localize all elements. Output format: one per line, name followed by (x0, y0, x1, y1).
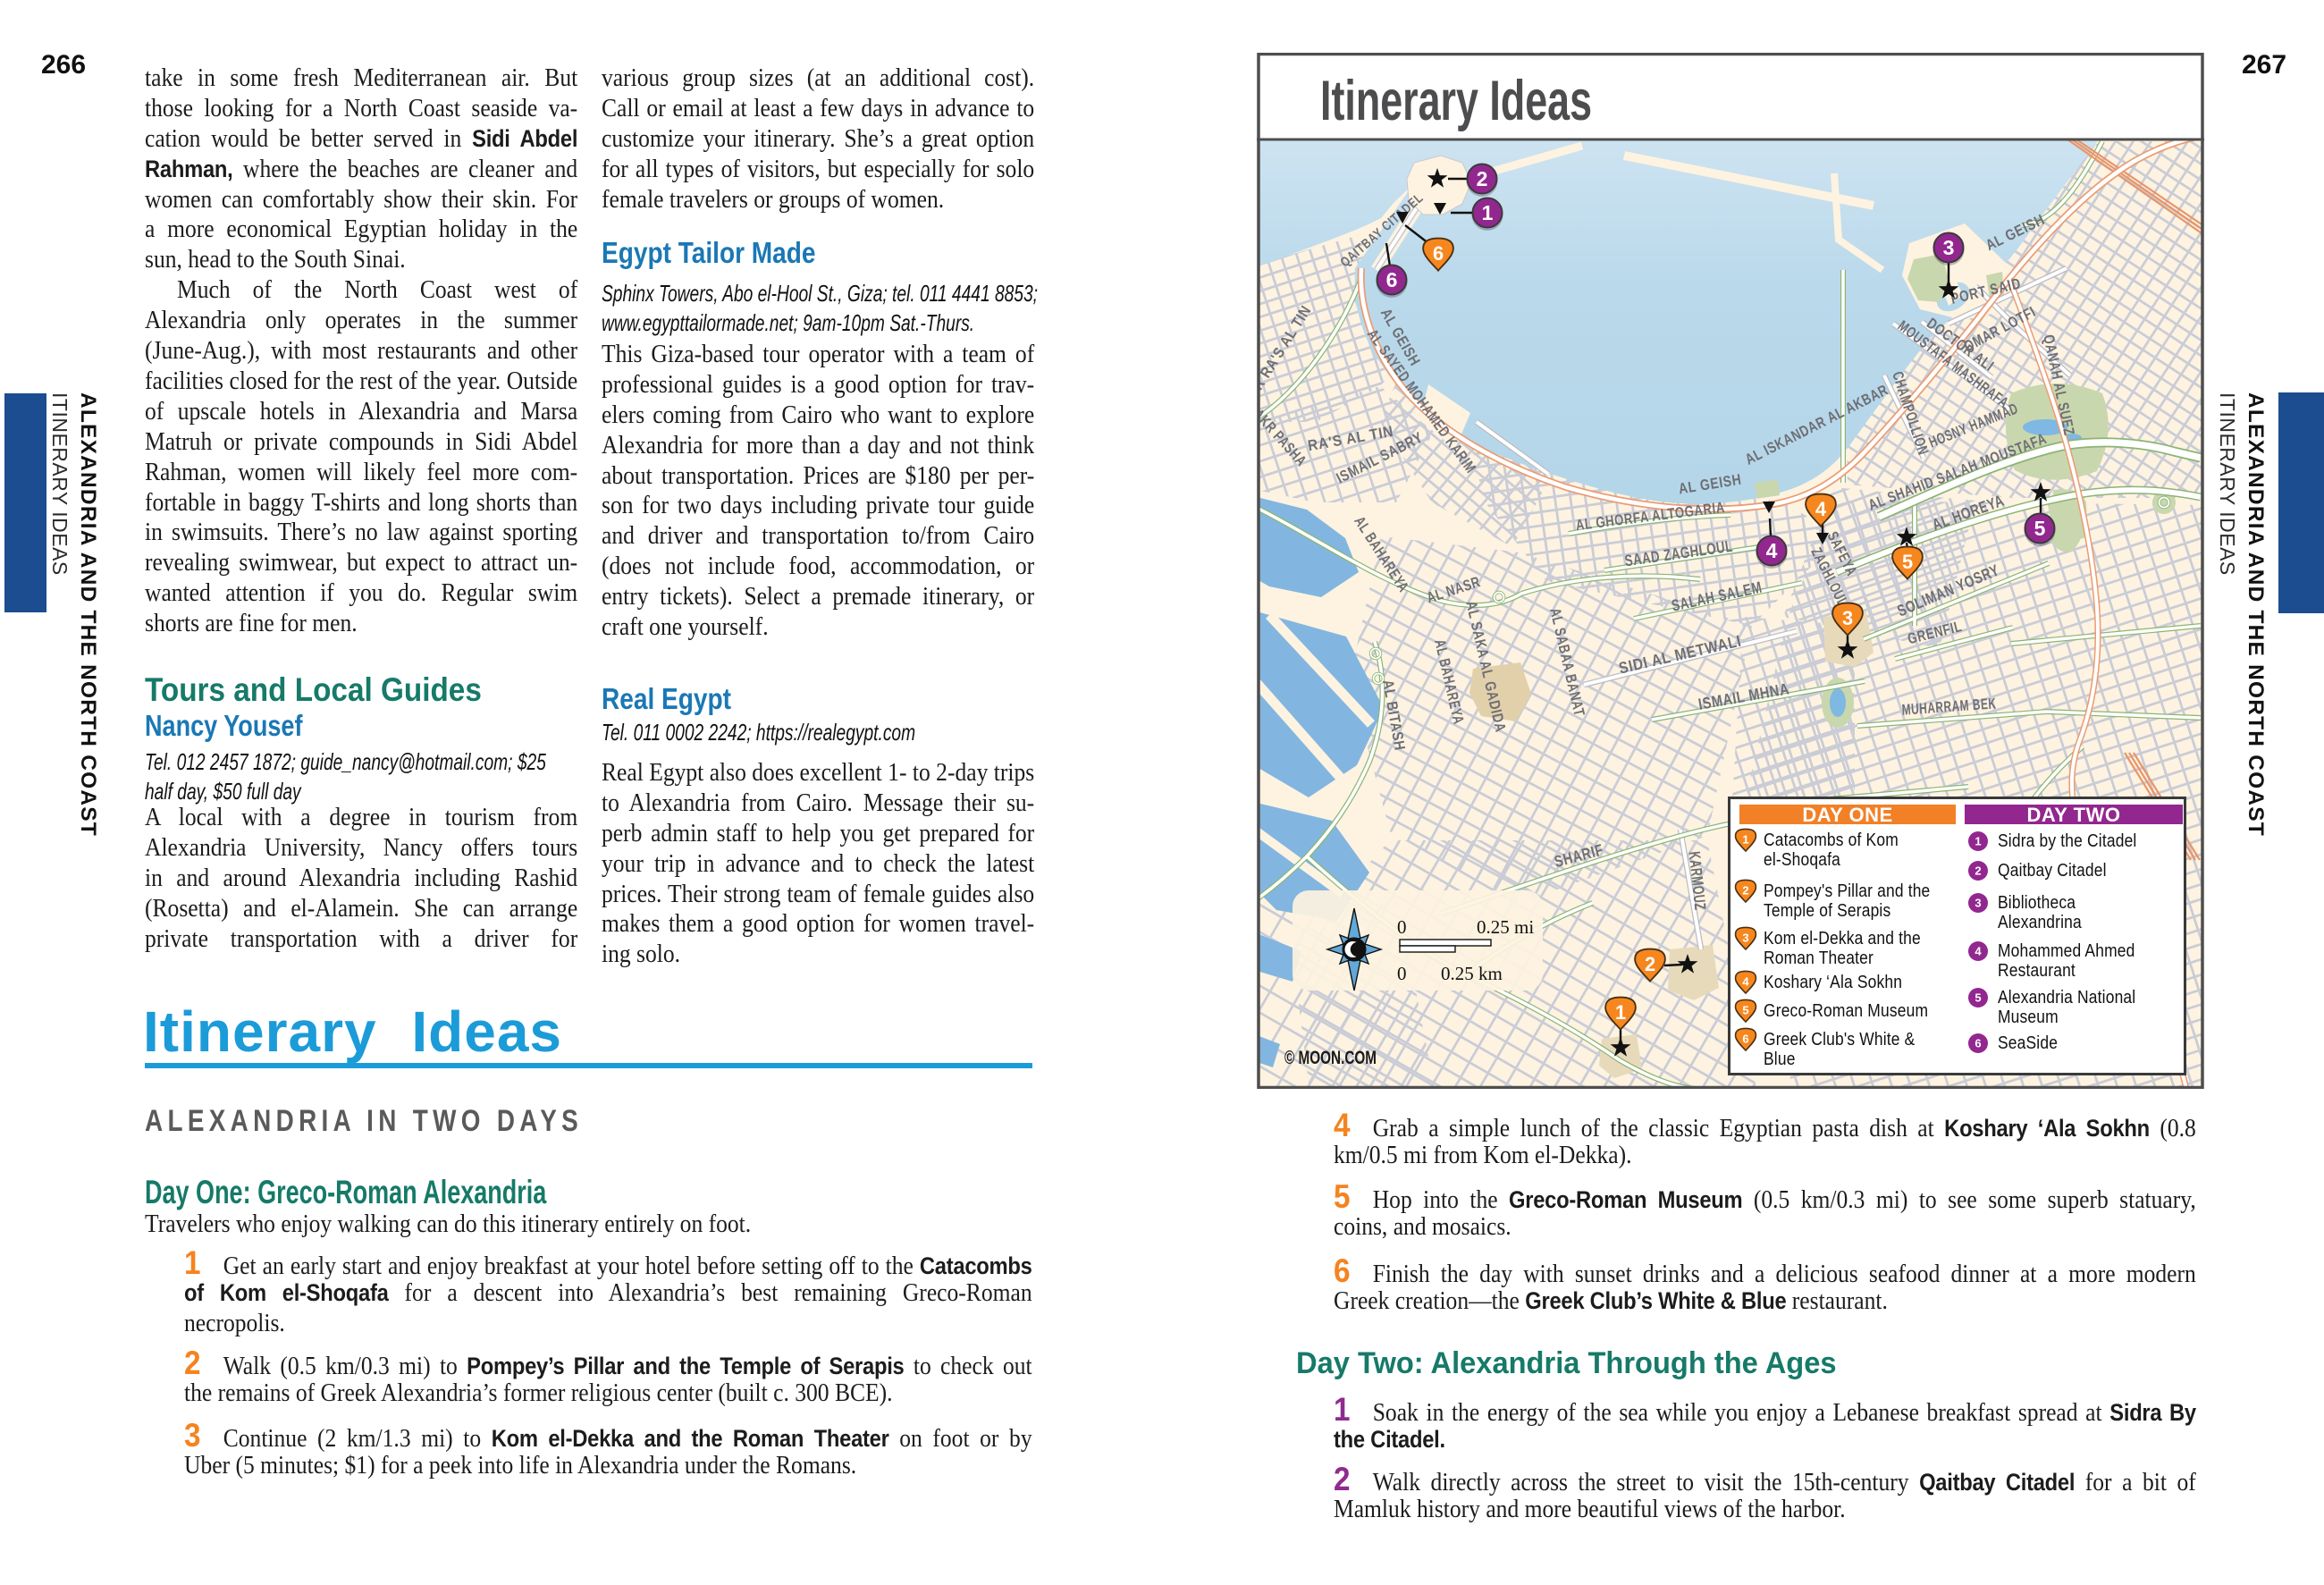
svg-text:2: 2 (1975, 864, 1981, 878)
svg-text:3: 3 (1742, 932, 1748, 945)
svg-text:6: 6 (1433, 242, 1444, 265)
svg-text:2: 2 (1477, 167, 1488, 190)
svg-text:4: 4 (1742, 975, 1749, 989)
svg-text:1: 1 (1482, 201, 1494, 224)
svg-text:5: 5 (2034, 517, 2046, 540)
svg-text:4: 4 (1975, 945, 1982, 958)
svg-text:Itinerary Ideas: Itinerary Ideas (1320, 70, 1592, 132)
svg-text:4: 4 (1766, 539, 1778, 562)
svg-text:1: 1 (1975, 835, 1981, 848)
svg-text:3: 3 (1975, 897, 1981, 910)
svg-text:0.25 mi: 0.25 mi (1477, 916, 1534, 938)
svg-text:1: 1 (1742, 833, 1748, 847)
svg-text:2: 2 (1742, 884, 1748, 898)
svg-text:0: 0 (1397, 963, 1407, 984)
svg-text:© MOON.COM: © MOON.COM (1284, 1048, 1377, 1068)
svg-text:0.25 km: 0.25 km (1441, 963, 1503, 984)
svg-text:4: 4 (1815, 498, 1827, 520)
svg-text:5: 5 (1902, 551, 1913, 573)
svg-text:1: 1 (1615, 1001, 1626, 1024)
svg-text:0: 0 (1397, 916, 1407, 938)
svg-text:6: 6 (1975, 1037, 1981, 1050)
svg-text:3: 3 (1943, 236, 1955, 259)
svg-text:2: 2 (1645, 953, 1655, 975)
svg-text:3: 3 (1842, 607, 1853, 629)
svg-text:5: 5 (1975, 991, 1981, 1005)
svg-text:5: 5 (1742, 1004, 1748, 1017)
svg-text:6: 6 (1742, 1033, 1748, 1046)
svg-text:6: 6 (1386, 268, 1398, 291)
